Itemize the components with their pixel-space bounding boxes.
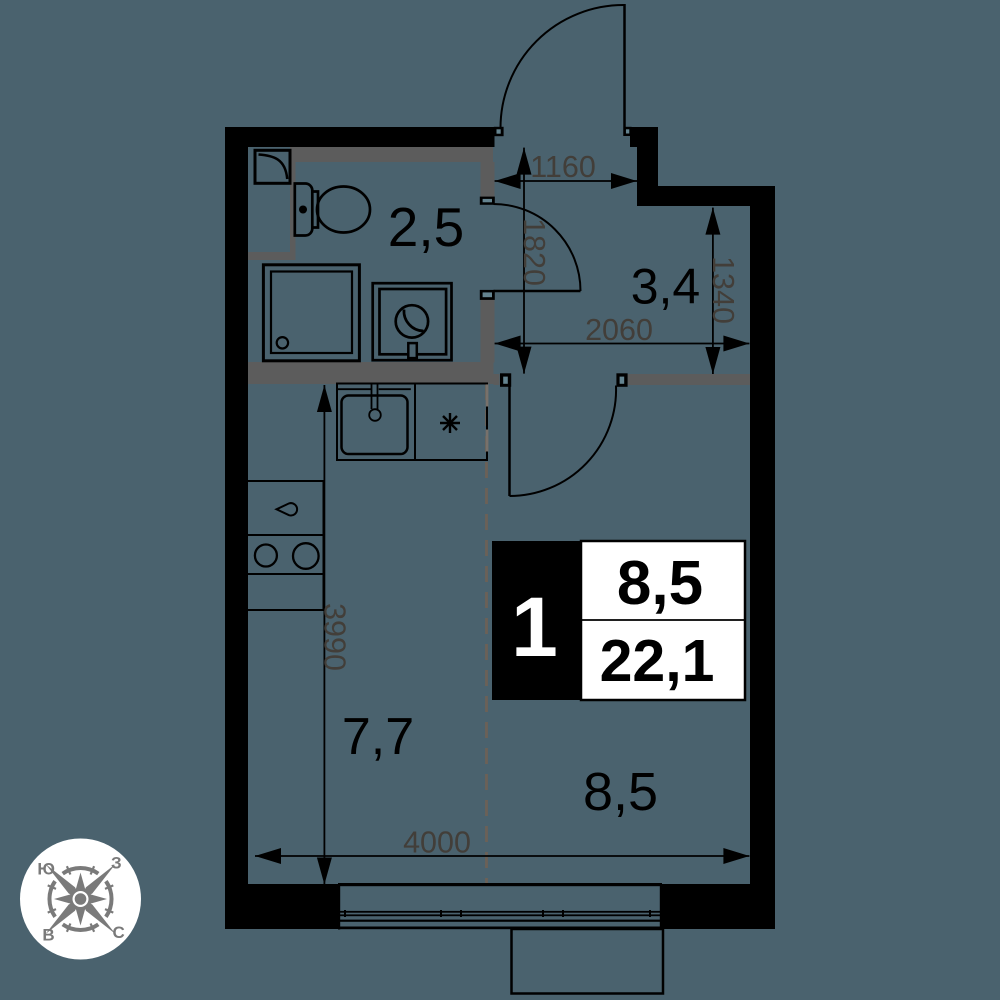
svg-text:3990: 3990	[317, 603, 351, 671]
svg-text:В: В	[42, 926, 54, 945]
svg-text:1: 1	[511, 580, 558, 674]
svg-text:1160: 1160	[530, 150, 596, 184]
svg-text:7,7: 7,7	[342, 708, 414, 766]
svg-text:4000: 4000	[403, 826, 471, 860]
svg-text:2060: 2060	[585, 313, 653, 347]
svg-text:1820: 1820	[517, 218, 551, 286]
svg-text:8,5: 8,5	[583, 762, 658, 822]
svg-text:С: С	[113, 923, 125, 942]
svg-text:8,5: 8,5	[617, 549, 703, 618]
svg-text:22,1: 22,1	[600, 628, 715, 694]
svg-text:2,5: 2,5	[388, 196, 464, 258]
svg-text:Ю: Ю	[37, 860, 55, 879]
svg-text:1340: 1340	[706, 256, 740, 324]
svg-text:3,4: 3,4	[631, 259, 701, 315]
svg-text:З: З	[111, 854, 122, 873]
